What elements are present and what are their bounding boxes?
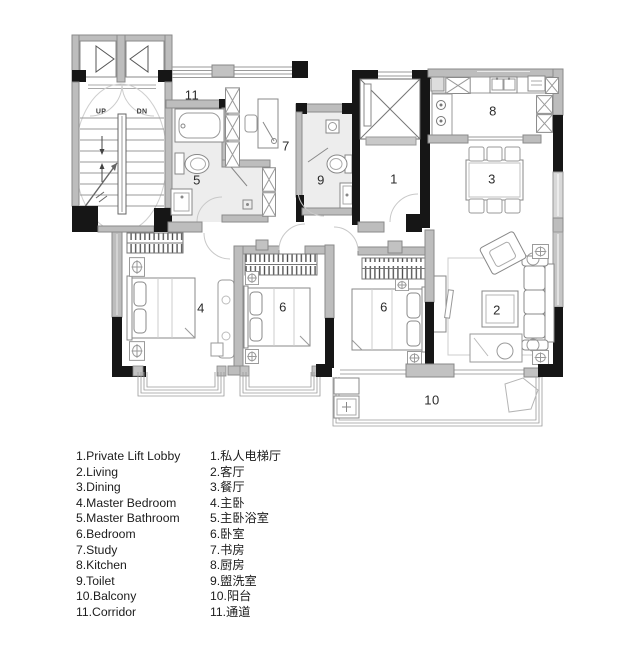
room-label-kitchen: 8 — [489, 104, 497, 119]
balcony — [333, 364, 563, 426]
legend-item-en: 11.Corridor — [76, 605, 180, 621]
room-label-dining: 3 — [488, 172, 496, 187]
dining — [466, 147, 563, 232]
stairwell — [72, 82, 172, 232]
tv-cabinet — [433, 276, 453, 332]
room-label-master-bedroom: 4 — [197, 301, 205, 316]
fridge-cabinet — [537, 96, 553, 133]
room-label-balcony: 10 — [424, 393, 439, 408]
nightstand — [245, 271, 258, 284]
legend-item-zh: 9.盥洗室 — [210, 574, 281, 590]
side-table — [533, 244, 549, 258]
kitchen-sink — [490, 77, 517, 93]
bedroom-left — [228, 224, 325, 375]
armchair — [479, 231, 527, 275]
stove — [432, 94, 452, 138]
corridor-window — [172, 61, 308, 78]
legend-item-en: 4.Master Bedroom — [76, 496, 180, 512]
stair-up-label: UP — [96, 109, 106, 116]
legend-item-zh: 11.通道 — [210, 605, 281, 621]
room-label-corridor: 11 — [185, 88, 200, 103]
legend-item-zh: 5.主卧浴室 — [210, 511, 281, 527]
desk-chair — [245, 115, 257, 132]
living — [433, 231, 563, 369]
washing-machine — [326, 120, 339, 133]
legend-english: 1.Private Lift Lobby2.Living3.Dining4.Ma… — [76, 449, 180, 621]
bathtub — [175, 109, 224, 142]
nightstand — [407, 351, 421, 364]
legend-item-zh: 10.阳台 — [210, 589, 281, 605]
legend-item-en: 10.Balcony — [76, 589, 180, 605]
toilet — [175, 153, 209, 174]
floor-plan-drawing — [0, 0, 640, 440]
nightstand — [130, 258, 145, 277]
sink — [340, 183, 354, 208]
nightstand — [395, 279, 408, 290]
plant — [505, 378, 538, 412]
legend-item-zh: 1.私人电梯厅 — [210, 449, 281, 465]
private-lift — [352, 70, 432, 228]
floor-plan: 1 2 3 4 5 6 6 7 8 9 10 11 UP DN — [0, 0, 640, 440]
sink — [171, 189, 192, 215]
bench — [470, 334, 522, 362]
legend-item-zh: 2.客厅 — [210, 465, 281, 481]
legend-item-zh: 8.厨房 — [210, 558, 281, 574]
legend-item-en: 5.Master Bathroom — [76, 511, 180, 527]
legend-item-zh: 6.卧室 — [210, 527, 281, 543]
room-label-lift-lobby: 1 — [390, 172, 398, 187]
bed — [352, 287, 426, 352]
bed — [244, 286, 310, 348]
nightstand — [245, 349, 258, 363]
side-table — [533, 350, 549, 364]
inner-wall — [425, 230, 434, 368]
stair-dn-label: DN — [137, 109, 148, 116]
room-label-master-bathroom: 5 — [193, 173, 201, 188]
room-label-living: 2 — [493, 303, 501, 318]
study — [225, 88, 278, 167]
legend-item-zh: 4.主卧 — [210, 496, 281, 512]
room-label-bedroom-right: 6 — [380, 300, 388, 315]
bedroom-right — [325, 227, 430, 368]
room-label-study: 7 — [282, 139, 290, 154]
room-label-toilet: 9 — [317, 173, 325, 188]
master-bedroom — [112, 222, 234, 377]
sofa — [522, 253, 554, 351]
room-label-bedroom-left: 6 — [279, 300, 287, 315]
legend-chinese: 1.私人电梯厅2.客厅3.餐厅4.主卧5.主卧浴室6.卧室7.书房8.厨房9.盥… — [210, 449, 281, 621]
lift-lobby — [358, 194, 422, 232]
balcony-sink — [334, 378, 359, 418]
floorplan-page: 1 2 3 4 5 6 6 7 8 9 10 11 UP DN 1.Privat… — [0, 0, 640, 663]
nightstand — [130, 342, 145, 361]
toilet — [327, 155, 352, 173]
legend-item-en: 1.Private Lift Lobby — [76, 449, 180, 465]
shower-floor — [228, 164, 264, 220]
legend-item-en: 3.Dining — [76, 480, 180, 496]
desk — [258, 99, 278, 148]
legend-item-en: 8.Kitchen — [76, 558, 180, 574]
bed — [127, 276, 195, 340]
legend-item-en: 6.Bedroom — [76, 527, 180, 543]
legend-item-en: 7.Study — [76, 543, 180, 559]
legend-item-zh: 7.书房 — [210, 543, 281, 559]
legend-item-en: 2.Living — [76, 465, 180, 481]
legend-item-en: 9.Toilet — [76, 574, 180, 590]
elevator-core — [72, 35, 172, 116]
legend-item-zh: 3.餐厅 — [210, 480, 281, 496]
